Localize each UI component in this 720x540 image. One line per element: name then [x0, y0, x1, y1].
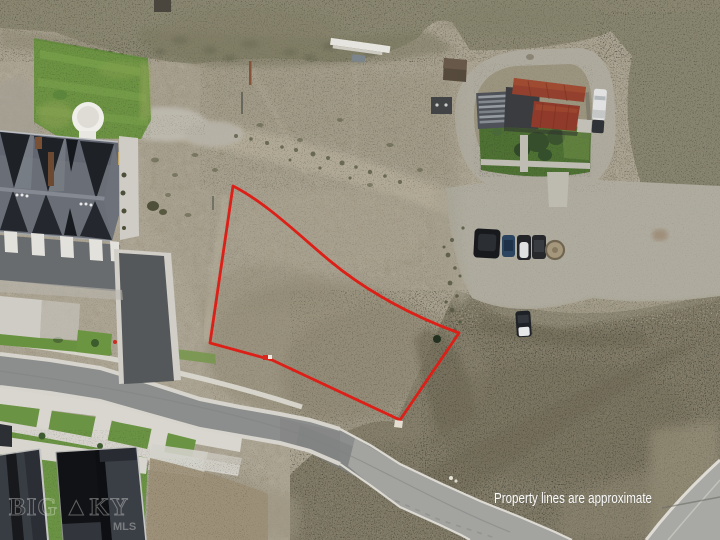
svg-text:MLS: MLS	[113, 521, 136, 533]
svg-text:Property lines are approximate: Property lines are approximate	[494, 490, 652, 507]
svg-text:BIG ▲KY: BIG ▲KY	[9, 494, 129, 521]
